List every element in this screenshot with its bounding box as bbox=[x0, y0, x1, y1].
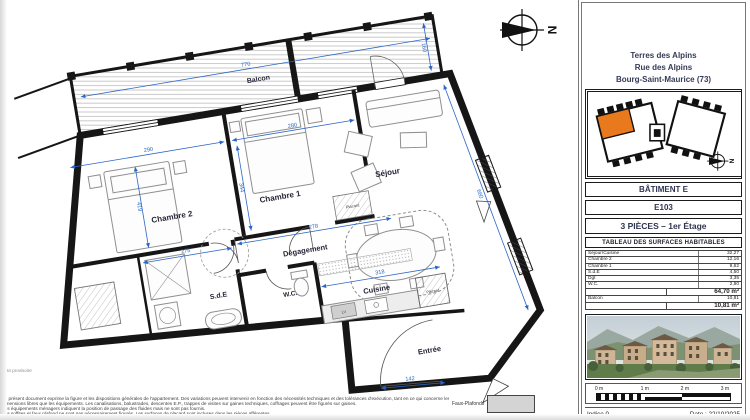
title-block: Terres des Alpins Rue des Alpins Bourg-S… bbox=[578, 0, 748, 420]
balcon-row-label: Balcon bbox=[586, 296, 699, 301]
scale-label-0: 0 m bbox=[595, 386, 603, 392]
key-plan-core bbox=[650, 124, 665, 140]
key-plan-north-letter: N bbox=[727, 159, 734, 164]
surface-total-row: 64,70 m² bbox=[586, 289, 741, 297]
surface-label: S.d.E bbox=[586, 270, 699, 275]
disclaimer: Le présent document exprime la figure et… bbox=[2, 396, 449, 416]
surface-table: Séjour/Cuisine 32,27 Chambre 2 12,16 Cha… bbox=[585, 250, 742, 310]
scale-bar: 0 m 1 m 2 m 3 m bbox=[585, 383, 742, 404]
surface-value: 3,35 bbox=[699, 276, 741, 281]
floor-plan-drawing: Balcon 770 160 bbox=[0, 0, 578, 420]
surface-value: 2,80 bbox=[699, 282, 741, 287]
surface-label: Dgt bbox=[586, 276, 699, 281]
surface-table-title: TABLEAU DES SURFACES HABITABLES bbox=[585, 237, 742, 248]
surface-value: 12,16 bbox=[699, 257, 741, 262]
scale-segment bbox=[682, 394, 730, 400]
scale-label-3: 3 m bbox=[721, 386, 729, 392]
page-edge-bottom bbox=[0, 414, 750, 420]
key-plan: N bbox=[585, 89, 742, 179]
surface-label: Chambre 1 bbox=[586, 264, 699, 269]
unit-type: 3 PIÈCES – 1er Étage bbox=[585, 218, 742, 234]
floor-plan-page: Balcon 770 160 bbox=[0, 0, 750, 420]
dim-entree: 142 bbox=[405, 376, 415, 383]
faux-plafonds-swatch bbox=[487, 395, 535, 413]
surface-value: 9,62 bbox=[699, 264, 741, 269]
project-street: Rue des Alpins bbox=[585, 62, 742, 74]
technical-shaft bbox=[74, 282, 120, 330]
surface-label: Séjour/Cuisine bbox=[586, 251, 699, 256]
surface-value: 32,27 bbox=[699, 251, 741, 256]
north-arrow: N bbox=[500, 9, 559, 51]
neighbour-wall-stub bbox=[7, 78, 83, 158]
balcon-row-value: 10,81 bbox=[699, 296, 741, 301]
scale-label-1: 1 m bbox=[641, 386, 649, 392]
faux-plafonds-legend: Faux-Plafonds bbox=[452, 395, 535, 413]
scale-segment bbox=[597, 394, 645, 400]
faux-plafonds-label: Faux-Plafonds bbox=[452, 401, 484, 407]
scale-label-2: 2 m bbox=[681, 386, 689, 392]
building-name: BÂTIMENT E bbox=[585, 182, 742, 197]
surface-label: W.C. bbox=[586, 282, 699, 287]
unit-number: E103 bbox=[585, 200, 742, 215]
project-header: Terres des Alpins Rue des Alpins Bourg-S… bbox=[585, 50, 742, 86]
total-habitable: 64,70 m² bbox=[667, 289, 741, 296]
balcon-total-row: 10,81 m² bbox=[586, 303, 741, 311]
surface-value: 4,50 bbox=[699, 270, 741, 275]
project-city: Bourg-Saint-Maurice (73) bbox=[585, 74, 742, 86]
project-name: Terres des Alpins bbox=[585, 50, 742, 62]
project-photo bbox=[585, 314, 742, 380]
north-letter: N bbox=[545, 26, 559, 35]
surface-label: Chambre 2 bbox=[586, 257, 699, 262]
page-edge-left bbox=[0, 0, 7, 420]
total-balcon: 10,81 m² bbox=[667, 303, 741, 310]
scale-segment bbox=[645, 394, 682, 400]
